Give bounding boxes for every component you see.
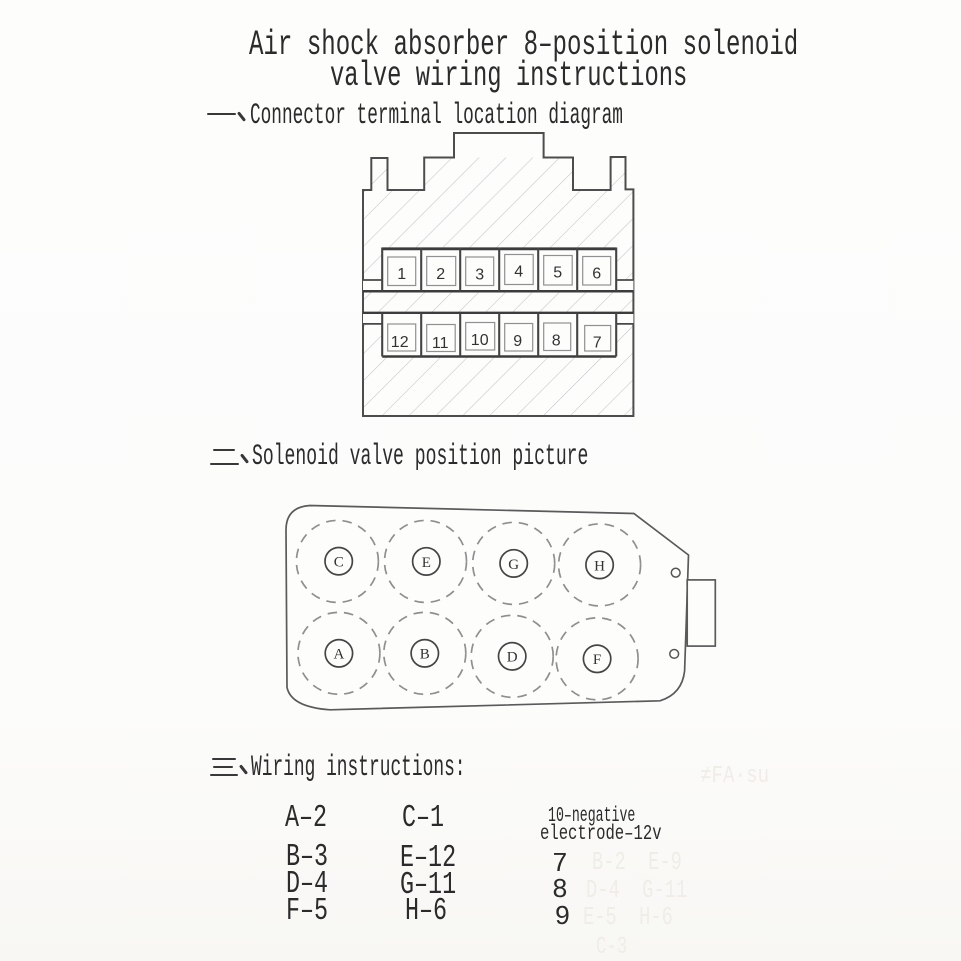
svg-text:B: B (420, 647, 430, 663)
svg-text:2: 2 (436, 266, 445, 283)
svg-text:8: 8 (552, 332, 561, 349)
svg-text:G: G (508, 557, 519, 573)
svg-text:7: 7 (593, 334, 602, 351)
svg-text:D: D (507, 650, 518, 666)
svg-text:11: 11 (432, 335, 449, 352)
svg-text:H: H (594, 558, 605, 574)
svg-text:E: E (422, 555, 431, 571)
svg-text:6: 6 (592, 265, 601, 282)
svg-text:4: 4 (514, 263, 523, 280)
svg-text:F: F (593, 652, 601, 668)
svg-text:5: 5 (553, 264, 562, 281)
svg-text:10: 10 (471, 332, 489, 349)
svg-text:1: 1 (397, 266, 406, 283)
svg-text:12: 12 (391, 334, 409, 351)
svg-text:3: 3 (475, 266, 484, 283)
svg-text:9: 9 (513, 333, 522, 350)
svg-text:A: A (333, 647, 344, 663)
svg-text:C: C (334, 555, 344, 571)
